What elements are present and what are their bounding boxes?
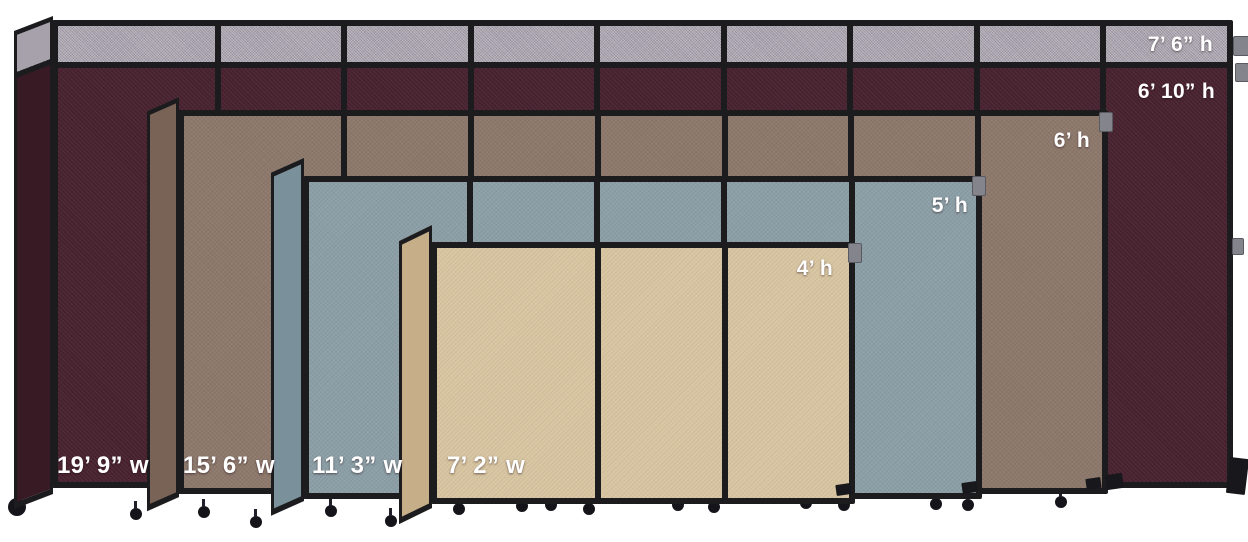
width-label-15ft6: 15’ 6” w: [183, 452, 275, 480]
fabric-panel: [980, 26, 1101, 62]
caster-wheel: [385, 515, 397, 527]
height-label-4ft: 4’ h: [797, 257, 833, 281]
caster-wheel: [1055, 496, 1067, 508]
height-label-6ft10: 6’ 10” h: [1138, 80, 1215, 104]
caster-wheel: [198, 506, 210, 518]
fabric-panel: [727, 26, 848, 62]
caster-wheel: [583, 503, 595, 515]
gray-height-extender-strip: [58, 26, 1227, 62]
caster-wheel: [130, 508, 142, 520]
caster-wheel: [250, 516, 262, 528]
fabric-panel: [601, 248, 722, 498]
partition-size-comparison-image: 7’ 6” h 6’ 10” h 6’ h 5’ h 4’ h 19’ 9” w…: [0, 0, 1248, 542]
fabric-panel: [600, 26, 721, 62]
width-label-11ft3: 11’ 3” w: [312, 452, 402, 480]
width-label-7ft2: 7’ 2” w: [447, 452, 525, 480]
height-label-7ft6: 7’ 6” h: [1148, 33, 1213, 57]
fabric-panel: [221, 26, 342, 62]
width-label-19ft9: 19’ 9” w: [57, 452, 149, 480]
partition-end-panel: [399, 225, 432, 524]
partition-end-panel: [271, 158, 304, 516]
caster-wheel: [930, 498, 942, 510]
caster-wheel: [962, 499, 974, 511]
fabric-panel: [855, 182, 976, 493]
fabric-panel: [728, 248, 849, 498]
fabric-panel: [58, 26, 215, 62]
partition-end-panel: [147, 97, 179, 511]
fabric-panel: [853, 26, 974, 62]
caster-wheel: [325, 505, 337, 517]
partition-end-panel: [14, 16, 53, 509]
height-label-5ft: 5’ h: [932, 194, 968, 218]
fabric-panel: [981, 116, 1102, 488]
fabric-panel: [1106, 68, 1227, 482]
fabric-panel: [347, 26, 468, 62]
fabric-panel: [474, 26, 595, 62]
height-label-6ft: 6’ h: [1054, 129, 1090, 153]
caster-wheel: [453, 503, 465, 515]
